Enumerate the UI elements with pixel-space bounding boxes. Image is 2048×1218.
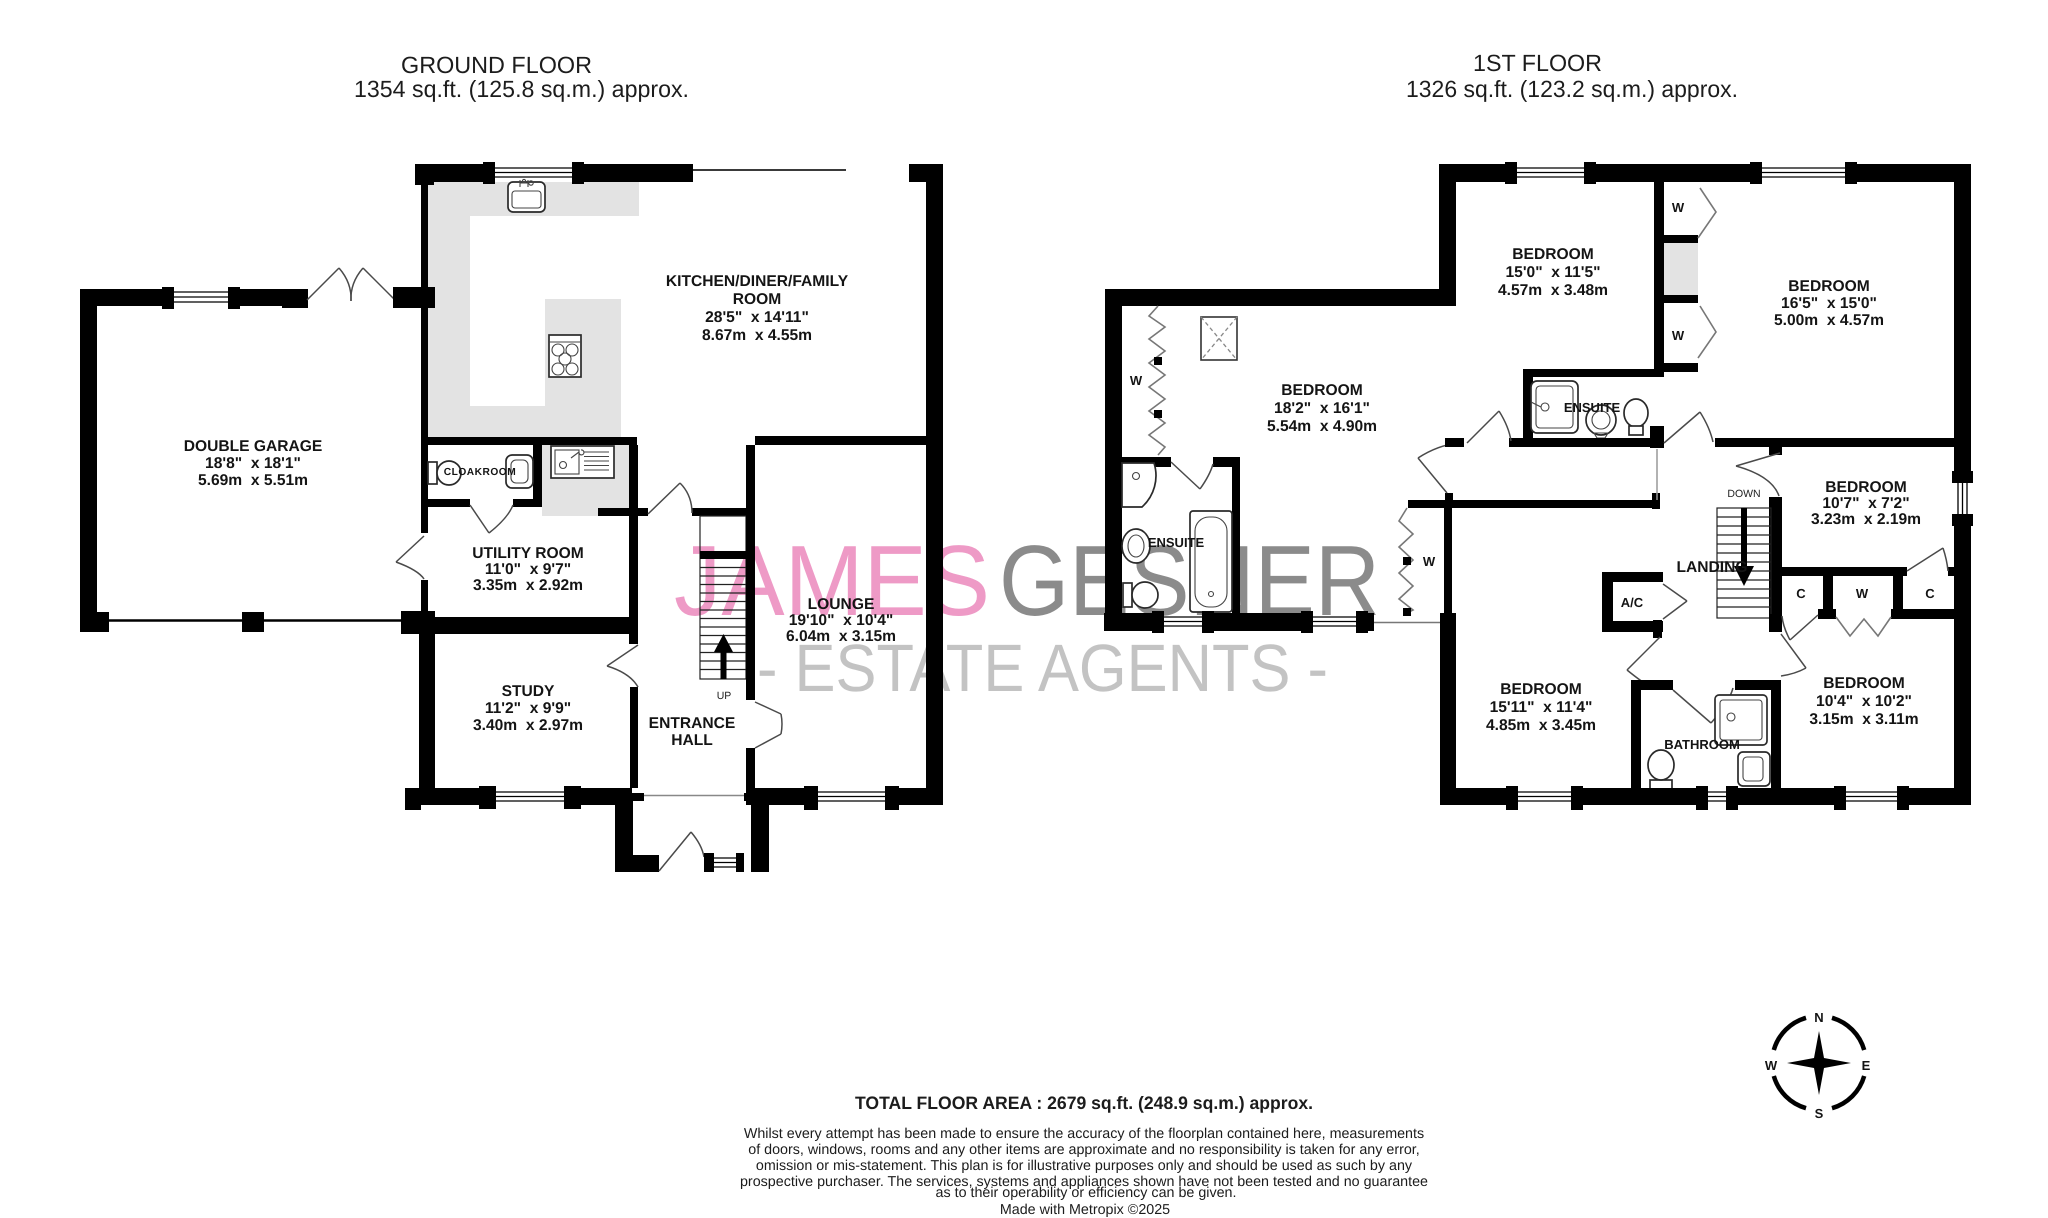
svg-text:5.00m x 4.57m: 5.00m x 4.57m xyxy=(1774,312,1884,329)
svg-text:DOUBLE GARAGE: DOUBLE GARAGE xyxy=(184,438,323,455)
svg-text:W: W xyxy=(1856,586,1869,601)
svg-text:ENTRANCE: ENTRANCE xyxy=(649,715,736,732)
svg-text:Made with Metropix ©2025: Made with Metropix ©2025 xyxy=(1000,1202,1170,1218)
svg-text:6.04m x 3.15m: 6.04m x 3.15m xyxy=(786,628,896,645)
svg-text:C: C xyxy=(1796,586,1806,601)
svg-text:BEDROOM: BEDROOM xyxy=(1823,675,1904,692)
svg-text:BEDROOM: BEDROOM xyxy=(1512,246,1593,263)
svg-text:11'2" x 9'9": 11'2" x 9'9" xyxy=(485,700,571,717)
svg-text:Whilst every attempt has been: Whilst every attempt has been made to en… xyxy=(744,1126,1424,1142)
svg-text:N: N xyxy=(1814,1010,1823,1025)
svg-text:GROUND FLOOR: GROUND FLOOR xyxy=(401,52,592,78)
svg-text:LOUNGE: LOUNGE xyxy=(808,596,875,613)
svg-text:DOWN: DOWN xyxy=(1727,488,1760,500)
svg-text:5.69m x 5.51m: 5.69m x 5.51m xyxy=(198,472,308,489)
svg-text:S: S xyxy=(1815,1106,1824,1121)
svg-text:8.67m x 4.55m: 8.67m x 4.55m xyxy=(702,327,812,344)
svg-text:ENSUITE: ENSUITE xyxy=(1148,535,1205,550)
svg-text:W: W xyxy=(1672,328,1685,343)
svg-text:TOTAL FLOOR AREA : 2679 sq.ft.: TOTAL FLOOR AREA : 2679 sq.ft. (248.9 sq… xyxy=(855,1093,1313,1113)
svg-text:ENSUITE: ENSUITE xyxy=(1564,400,1621,415)
svg-text:4.85m x 3.45m: 4.85m x 3.45m xyxy=(1486,717,1596,734)
svg-text:W: W xyxy=(1130,373,1143,388)
svg-text:omission or mis-statement. Thi: omission or mis-statement. This plan is … xyxy=(756,1158,1413,1174)
svg-text:LANDING: LANDING xyxy=(1676,559,1747,576)
svg-text:CLOAKROOM: CLOAKROOM xyxy=(444,467,516,478)
svg-text:3.15m x 3.11m: 3.15m x 3.11m xyxy=(1809,711,1918,728)
svg-text:BEDROOM: BEDROOM xyxy=(1788,278,1869,295)
svg-text:1326 sq.ft. (123.2 sq.m.) appr: 1326 sq.ft. (123.2 sq.m.) approx. xyxy=(1406,76,1738,102)
svg-text:W: W xyxy=(1423,554,1436,569)
svg-text:KITCHEN/DINER/FAMILY: KITCHEN/DINER/FAMILY xyxy=(666,273,849,290)
svg-text:16'5" x 15'0": 16'5" x 15'0" xyxy=(1781,295,1877,312)
svg-text:W: W xyxy=(1765,1058,1778,1073)
svg-text:1ST FLOOR: 1ST FLOOR xyxy=(1473,50,1602,76)
svg-text:STUDY: STUDY xyxy=(502,683,555,700)
svg-text:10'4" x 10'2": 10'4" x 10'2" xyxy=(1816,693,1912,710)
svg-text:BEDROOM: BEDROOM xyxy=(1825,479,1906,496)
svg-text:11'0" x 9'7": 11'0" x 9'7" xyxy=(485,561,571,578)
svg-text:of doors, windows, rooms and a: of doors, windows, rooms and any other i… xyxy=(748,1142,1420,1158)
svg-text:1354 sq.ft. (125.8 sq.m.) appr: 1354 sq.ft. (125.8 sq.m.) approx. xyxy=(354,76,689,102)
svg-text:18'2" x 16'1": 18'2" x 16'1" xyxy=(1274,400,1370,417)
svg-text:BATHROOM: BATHROOM xyxy=(1664,737,1740,752)
svg-text:UP: UP xyxy=(717,690,732,702)
svg-text:BEDROOM: BEDROOM xyxy=(1500,681,1581,698)
svg-text:3.35m x 2.92m: 3.35m x 2.92m xyxy=(473,577,583,594)
svg-text:3.40m x 2.97m: 3.40m x 2.97m xyxy=(473,717,583,734)
svg-text:15'0" x 11'5": 15'0" x 11'5" xyxy=(1505,264,1600,281)
svg-text:W: W xyxy=(1672,200,1685,215)
svg-text:3.23m x 2.19m: 3.23m x 2.19m xyxy=(1811,511,1921,528)
svg-text:ROOM: ROOM xyxy=(733,291,782,308)
svg-text:BEDROOM: BEDROOM xyxy=(1281,382,1362,399)
svg-text:E: E xyxy=(1862,1058,1871,1073)
svg-text:15'11" x 11'4": 15'11" x 11'4" xyxy=(1490,699,1593,716)
svg-text:4.57m x 3.48m: 4.57m x 3.48m xyxy=(1498,282,1608,299)
svg-text:28'5" x 14'11": 28'5" x 14'11" xyxy=(705,309,809,326)
svg-text:HALL: HALL xyxy=(671,732,713,749)
svg-text:18'8" x 18'1": 18'8" x 18'1" xyxy=(205,455,301,472)
svg-text:as to their operability or eff: as to their operability or efficiency ca… xyxy=(936,1185,1237,1201)
svg-text:19'10" x 10'4": 19'10" x 10'4" xyxy=(789,612,894,629)
svg-text:10'7" x 7'2": 10'7" x 7'2" xyxy=(1822,495,1909,512)
svg-text:A/C: A/C xyxy=(1621,595,1644,610)
svg-text:UTILITY ROOM: UTILITY ROOM xyxy=(472,545,583,562)
svg-text:5.54m x 4.90m: 5.54m x 4.90m xyxy=(1267,418,1377,435)
svg-text:C: C xyxy=(1925,586,1935,601)
